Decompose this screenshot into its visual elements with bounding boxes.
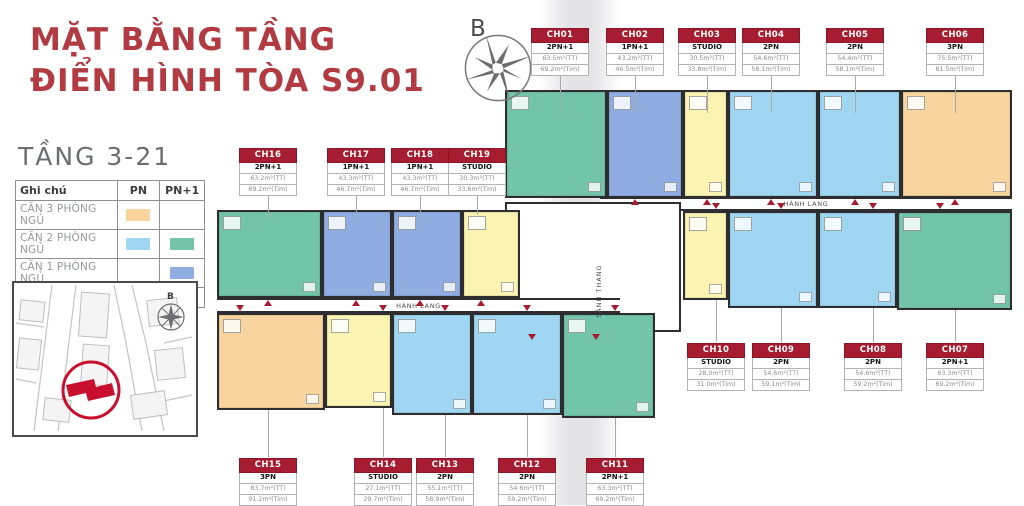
unit-area-tt: 30.3m²(TT): [448, 174, 506, 185]
unit-type: 2PN: [844, 358, 902, 369]
leader-line: [855, 75, 856, 113]
leader-line: [781, 308, 782, 342]
unit-label-ch02: CH02 1PN+1 43.2m²(TT) 46.5m²(Tim): [606, 28, 664, 76]
legend-label-2pn: CĂN 2 PHÒNG NGỦ: [16, 230, 118, 259]
unit-ch02: [607, 90, 683, 198]
unit-type: 2PN: [498, 473, 556, 484]
unit-area-tim: 29.7m²(Tim): [354, 495, 412, 506]
unit-label-ch07: CH07 2PN+1 63.3m²(TT) 69.2m²(Tim): [926, 343, 984, 391]
swatch-3pn-pn: [126, 209, 150, 221]
swatch-3pn-pn1: [170, 209, 194, 221]
leader-line: [873, 308, 874, 342]
unit-area-tt: 54.6m²(TT): [742, 54, 800, 65]
unit-type: STUDIO: [678, 43, 736, 54]
unit-id: CH04: [742, 28, 800, 43]
unit-label-ch10: CH10 STUDIO 28.0m²(TT) 31.0m²(Tim): [687, 343, 745, 391]
unit-area-tt: 63.3m²(TT): [586, 484, 644, 495]
unit-id: CH18: [391, 148, 449, 163]
entrance-arrow: [352, 300, 360, 306]
entrance-arrow: [416, 300, 424, 306]
site-location-map: B: [12, 281, 198, 437]
unit-label-ch04: CH04 2PN 54.6m²(TT) 58.1m²(Tim): [742, 28, 800, 76]
site-map-compass: [158, 304, 184, 330]
page-title-line1: MẶT BẰNG TẦNG: [30, 20, 425, 61]
unit-area-tt: 54.6m²(TT): [844, 369, 902, 380]
entrance-arrow: [712, 203, 720, 209]
leader-line: [560, 75, 561, 113]
unit-label-ch15: CH15 3PN 83.7m²(TT) 91.2m²(Tim): [239, 458, 297, 506]
unit-area-tim: 58.9m²(Tim): [416, 495, 474, 506]
unit-label-ch12: CH12 2PN 54.6m²(TT) 59.2m²(Tim): [498, 458, 556, 506]
unit-label-ch05: CH05 2PN 54.4m²(TT) 58.1m²(Tim): [826, 28, 884, 76]
unit-type: STUDIO: [687, 358, 745, 369]
entrance-arrow: [936, 203, 944, 209]
leader-line: [771, 75, 772, 113]
unit-area-tim: 69.2m²(Tim): [586, 495, 644, 506]
entrance-arrow: [477, 300, 485, 306]
unit-area-tim: 91.2m²(Tim): [239, 495, 297, 506]
site-map-north-label: B: [167, 292, 174, 302]
unit-id: CH12: [498, 458, 556, 473]
entrance-arrow: [703, 199, 711, 205]
unit-id: CH10: [687, 343, 745, 358]
entrance-arrow: [528, 334, 536, 340]
unit-type: STUDIO: [448, 163, 506, 174]
unit-area-tim: 33.6m²(Tim): [448, 185, 506, 196]
entrance-arrow: [441, 305, 449, 311]
legend-header-pn1: PN+1: [160, 181, 205, 201]
leader-line: [635, 75, 636, 113]
unit-area-tt: 63.2m²(TT): [239, 174, 297, 185]
entrance-arrow: [631, 199, 639, 205]
unit-label-ch13: CH13 2PN 55.1m²(TT) 58.9m²(Tim): [416, 458, 474, 506]
legend-row-2pn: CĂN 2 PHÒNG NGỦ: [16, 230, 205, 259]
unit-id: CH01: [531, 28, 589, 43]
unit-area-tim: 59.2m²(Tim): [844, 380, 902, 391]
unit-area-tt: 43.2m²(TT): [606, 54, 664, 65]
entrance-arrow: [851, 199, 859, 205]
unit-type: 2PN+1: [586, 473, 644, 484]
leader-line: [707, 75, 708, 113]
unit-label-ch03: CH03 STUDIO 30.5m²(TT) 33.8m²(Tim): [678, 28, 736, 76]
leader-line: [477, 195, 478, 215]
unit-id: CH08: [844, 343, 902, 358]
swatch-1pn-pn: [126, 267, 150, 279]
unit-area-tt: 63.5m²(TT): [531, 54, 589, 65]
unit-area-tim: 81.5m²(Tim): [926, 65, 984, 76]
unit-area-tim: 59.1m²(Tim): [752, 380, 810, 391]
unit-area-tim: 69.2m²(Tim): [531, 65, 589, 76]
unit-ch19: [462, 210, 520, 298]
core-lobby-label: SẢNH THANG: [595, 218, 603, 318]
leader-line: [420, 195, 421, 218]
page-title: MẶT BẰNG TẦNG ĐIỂN HÌNH TÒA S9.01: [30, 20, 425, 102]
unit-id: CH05: [826, 28, 884, 43]
unit-ch07: [897, 211, 1012, 310]
unit-id: CH06: [926, 28, 984, 43]
unit-id: CH13: [416, 458, 474, 473]
unit-area-tt: 43.3m²(TT): [391, 174, 449, 185]
legend-header-note: Ghi chú: [16, 181, 118, 201]
entrance-arrow: [767, 199, 775, 205]
unit-ch09: [728, 211, 818, 308]
unit-label-ch18: CH18 1PN+1 43.3m²(TT) 46.7m²(Tim): [391, 148, 449, 196]
legend-header-row: Ghi chú PN PN+1: [16, 181, 205, 201]
unit-type: STUDIO: [354, 473, 412, 484]
unit-area-tt: 54.4m²(TT): [826, 54, 884, 65]
unit-area-tim: 46.5m²(Tim): [606, 65, 664, 76]
unit-ch18: [392, 210, 462, 298]
unit-label-ch11: CH11 2PN+1 63.3m²(TT) 69.2m²(Tim): [586, 458, 644, 506]
entrance-arrow: [869, 203, 877, 209]
unit-id: CH15: [239, 458, 297, 473]
unit-ch13: [392, 313, 472, 415]
leader-line: [955, 75, 956, 113]
entrance-arrow: [951, 199, 959, 205]
unit-type: 2PN+1: [239, 163, 297, 174]
unit-id: CH14: [354, 458, 412, 473]
unit-area-tim: 58.1m²(Tim): [742, 65, 800, 76]
unit-id: CH11: [586, 458, 644, 473]
unit-ch08: [818, 211, 897, 308]
unit-ch14: [325, 313, 392, 408]
entrance-arrow: [592, 334, 600, 340]
unit-label-ch09: CH09 2PN 54.6m²(TT) 59.1m²(Tim): [752, 343, 810, 391]
page-title-line2: ĐIỂN HÌNH TÒA S9.01: [30, 61, 425, 102]
unit-type: 1PN+1: [391, 163, 449, 174]
unit-ch01: [505, 90, 607, 198]
unit-ch16: [217, 210, 322, 298]
unit-type: 1PN+1: [606, 43, 664, 54]
unit-type: 3PN: [926, 43, 984, 54]
unit-area-tt: 83.7m²(TT): [239, 484, 297, 495]
unit-area-tim: 31.0m²(Tim): [687, 380, 745, 391]
unit-ch11: [562, 313, 655, 418]
unit-type: 2PN+1: [926, 358, 984, 369]
leader-line: [615, 418, 616, 457]
unit-id: CH09: [752, 343, 810, 358]
leader-line: [716, 300, 717, 342]
unit-id: CH17: [327, 148, 385, 163]
leader-line: [955, 310, 956, 342]
unit-label-ch08: CH08 2PN 54.6m²(TT) 59.2m²(Tim): [844, 343, 902, 391]
floor-range-subtitle: TẦNG 3-21: [18, 142, 171, 171]
unit-ch17: [322, 210, 392, 298]
unit-label-ch16: CH16 2PN+1 63.2m²(TT) 69.2m²(Tim): [239, 148, 297, 196]
unit-label-ch19: CH19 STUDIO 30.3m²(TT) 33.6m²(Tim): [448, 148, 506, 196]
unit-type: 3PN: [239, 473, 297, 484]
unit-area-tt: 55.1m²(TT): [416, 484, 474, 495]
unit-id: CH16: [239, 148, 297, 163]
unit-ch06: [901, 90, 1012, 198]
unit-label-ch01: CH01 2PN+1 63.5m²(TT) 69.2m²(Tim): [531, 28, 589, 76]
unit-area-tt: 43.3m²(TT): [327, 174, 385, 185]
unit-area-tim: 46.7m²(Tim): [327, 185, 385, 196]
entrance-arrow: [379, 305, 387, 311]
legend-row-3pn: CĂN 3 PHÒNG NGỦ: [16, 201, 205, 230]
swatch-1pn-pn1: [170, 267, 194, 279]
compass-icon: [460, 30, 536, 106]
unit-area-tim: 69.2m²(Tim): [926, 380, 984, 391]
legend-header-pn: PN: [117, 181, 160, 201]
unit-type: 2PN: [752, 358, 810, 369]
legend-label-3pn: CĂN 3 PHÒNG NGỦ: [16, 201, 118, 230]
entrance-arrow: [236, 305, 244, 311]
leader-line: [527, 415, 528, 457]
unit-area-tim: 33.8m²(Tim): [678, 65, 736, 76]
unit-ch12: [472, 313, 562, 415]
unit-type: 1PN+1: [327, 163, 385, 174]
unit-label-ch14: CH14 STUDIO 27.1m²(TT) 29.7m²(Tim): [354, 458, 412, 506]
unit-id: CH02: [606, 28, 664, 43]
unit-area-tim: 69.2m²(Tim): [239, 185, 297, 196]
swatch-2pn-pn1: [170, 238, 194, 250]
unit-area-tt: 54.6m²(TT): [498, 484, 556, 495]
unit-label-ch06: CH06 3PN 75.5m²(TT) 81.5m²(Tim): [926, 28, 984, 76]
unit-area-tt: 54.6m²(TT): [752, 369, 810, 380]
unit-area-tt: 63.3m²(TT): [926, 369, 984, 380]
unit-ch15: [217, 313, 325, 410]
entrance-arrow: [611, 305, 619, 311]
entrance-arrow: [523, 305, 531, 311]
entrance-arrow: [777, 203, 785, 209]
leader-line: [383, 408, 384, 457]
unit-area-tt: 28.0m²(TT): [687, 369, 745, 380]
corridor-upper-label: HÀNH LANG: [784, 200, 829, 208]
entrance-arrow: [264, 300, 272, 306]
unit-area-tim: 59.2m²(Tim): [498, 495, 556, 506]
unit-type: 2PN: [416, 473, 474, 484]
unit-type: 2PN: [742, 43, 800, 54]
page: MẶT BẰNG TẦNG ĐIỂN HÌNH TÒA S9.01 TẦNG 3…: [0, 0, 1024, 505]
leader-line: [445, 415, 446, 457]
unit-id: CH07: [926, 343, 984, 358]
unit-ch10: [683, 211, 728, 300]
unit-type: 2PN: [826, 43, 884, 54]
unit-ch03: [683, 90, 728, 198]
leader-line: [268, 195, 269, 218]
leader-line: [356, 195, 357, 218]
unit-area-tim: 58.1m²(Tim): [826, 65, 884, 76]
swatch-2pn-pn: [126, 238, 150, 250]
unit-ch05: [818, 90, 901, 198]
unit-label-ch17: CH17 1PN+1 43.3m²(TT) 46.7m²(Tim): [327, 148, 385, 196]
unit-area-tim: 46.7m²(Tim): [391, 185, 449, 196]
unit-id: CH19: [448, 148, 506, 163]
leader-line: [268, 410, 269, 457]
unit-area-tt: 27.1m²(TT): [354, 484, 412, 495]
unit-area-tt: 75.5m²(TT): [926, 54, 984, 65]
unit-id: CH03: [678, 28, 736, 43]
unit-type: 2PN+1: [531, 43, 589, 54]
unit-area-tt: 30.5m²(TT): [678, 54, 736, 65]
unit-ch04: [728, 90, 818, 198]
site-map-sketch: B: [14, 283, 192, 431]
